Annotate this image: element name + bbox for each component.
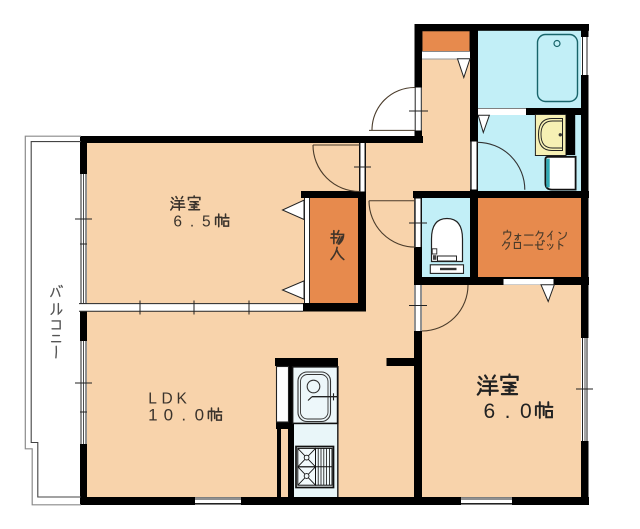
svg-text:0: 0 [195, 405, 204, 424]
svg-text:5: 5 [202, 214, 211, 231]
svg-text:6: 6 [484, 400, 496, 423]
svg-text:.: . [181, 405, 186, 424]
svg-text:6: 6 [173, 214, 182, 231]
svg-text:0: 0 [520, 400, 532, 423]
svg-text:0: 0 [164, 405, 173, 424]
svg-text:.: . [190, 214, 194, 231]
svg-text:.: . [505, 400, 511, 423]
svg-text:1: 1 [148, 405, 157, 424]
